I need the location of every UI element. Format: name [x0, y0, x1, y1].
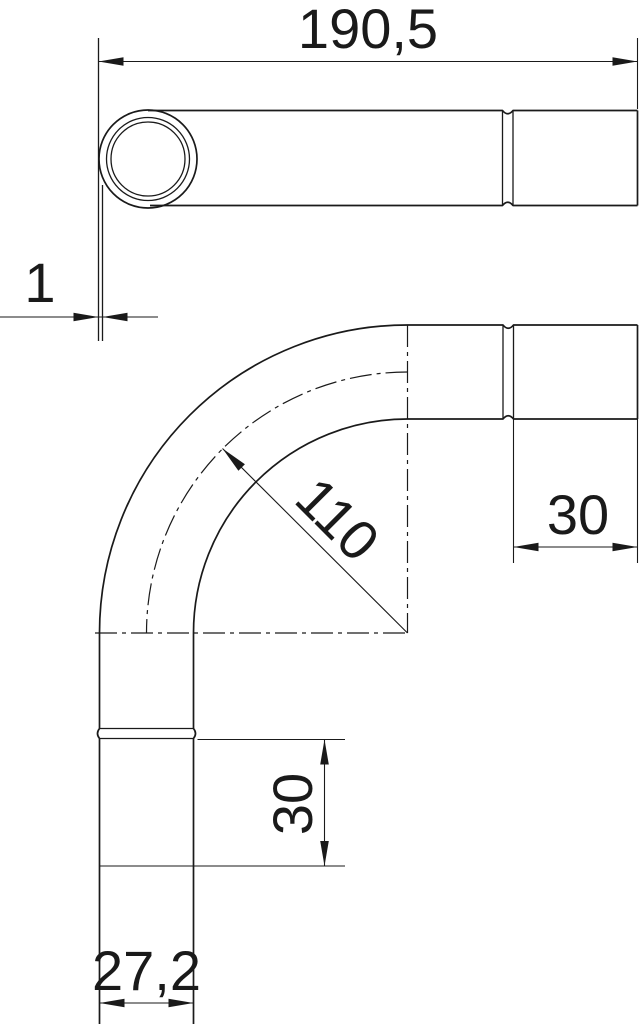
pipe-end-middle-circle	[107, 118, 190, 201]
bend-outer-contour	[98, 325, 638, 1024]
arrowhead-up-icon	[320, 740, 329, 765]
dimension-socket-length-side: 30	[514, 419, 638, 563]
arrowhead-right-icon	[613, 57, 638, 66]
top-view	[99, 38, 638, 341]
dimension-socket-length-side-label: 30	[547, 483, 609, 546]
arrowhead-left-icon	[514, 543, 539, 552]
dimension-overall-length-label: 190,5	[298, 0, 438, 60]
bend-view	[95, 325, 638, 1024]
technical-drawing: 190,5 1 110	[0, 0, 641, 1024]
pipe-bottom-edge	[150, 202, 638, 205]
drawing-page: 190,5 1 110	[0, 0, 641, 1024]
dimension-overall-length: 190,5	[99, 0, 638, 109]
arrowhead-right-icon	[613, 543, 638, 552]
dimension-wall-thickness-label: 1	[24, 251, 55, 314]
arrowhead-left-icon	[99, 57, 124, 66]
dimension-socket-length-bottom-label: 30	[261, 773, 324, 835]
arrowhead-right-icon	[103, 313, 128, 322]
arrowhead-down-icon	[320, 841, 329, 866]
dimension-wall-thickness: 1	[0, 251, 158, 321]
arrowhead-radius-icon	[223, 449, 245, 471]
dimension-bend-radius: 110	[223, 449, 408, 634]
pipe-end-inner-circle	[111, 122, 185, 196]
pipe-top-edge	[148, 111, 638, 114]
pipe-end-outer-circle	[99, 110, 197, 208]
dimension-bend-radius-label: 110	[284, 465, 392, 573]
dimension-outer-diameter-label: 27,2	[92, 939, 201, 1002]
arrowhead-left-icon	[74, 313, 99, 322]
dimension-socket-length-bottom: 30	[100, 740, 346, 867]
dimension-outer-diameter: 27,2	[92, 939, 201, 1007]
